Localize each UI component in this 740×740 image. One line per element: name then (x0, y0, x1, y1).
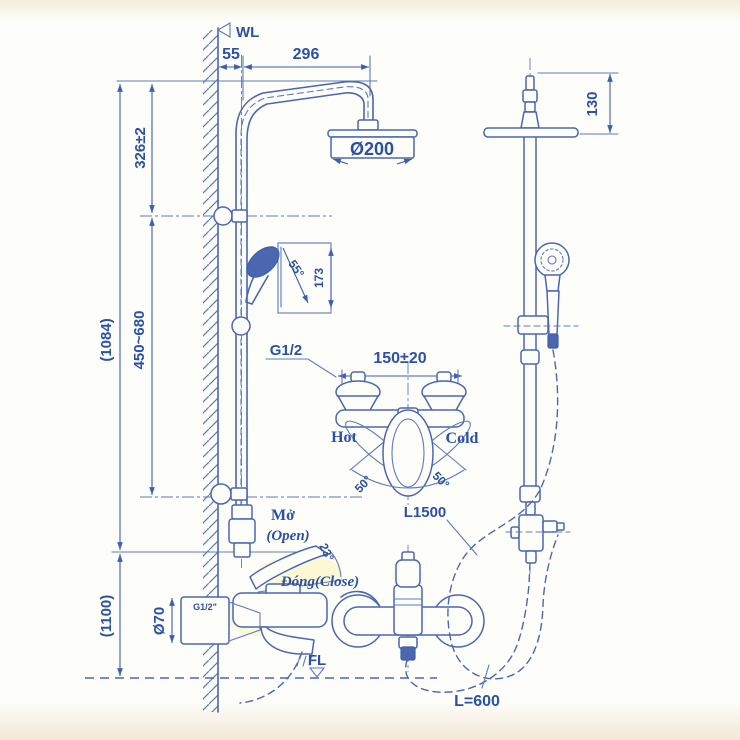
mixer-column-front (394, 585, 422, 635)
l600-leader (482, 665, 489, 688)
lower-wall-bracket (211, 484, 231, 504)
tip-nut-lower (525, 102, 535, 112)
dim-55: 55 (222, 46, 240, 63)
head-flange (358, 120, 378, 130)
wall-level-marker-icon (218, 23, 230, 37)
swing-50-left: 50° (352, 473, 375, 496)
dim-173: 173 (312, 268, 326, 288)
l1500-leader (447, 520, 477, 555)
upper-wall-bracket (214, 207, 232, 225)
dim-dia70: Ø70 (151, 607, 168, 635)
hose-l600-label: L=600 (454, 693, 500, 710)
tip-nut-upper (523, 90, 537, 102)
dim-450-680: 450~680 (131, 311, 148, 370)
check-valve-body (229, 519, 255, 543)
mixer-spout (261, 627, 314, 654)
dia200-arrow-left (333, 159, 348, 164)
head-disc-side (484, 128, 578, 137)
diverter-outlet (543, 521, 557, 532)
check-valve-top (232, 505, 252, 519)
technical-drawing-canvas: WL 55 296 326±2 (1084) 450~680 (1100) Ø2… (0, 0, 740, 740)
side-pole (524, 112, 536, 487)
dim-dia200: Ø200 (350, 139, 394, 159)
air-inlet-tip (526, 76, 534, 90)
floor-level-marker-icon (310, 668, 324, 677)
lever-knob-front (396, 560, 420, 587)
hose-connector-front (401, 647, 415, 660)
diverter-tail (526, 551, 536, 563)
handshower-head-side (535, 243, 569, 277)
check-valve-nut (234, 543, 250, 557)
lever-front (383, 410, 433, 496)
inlet-thread-label: G1/2" (193, 602, 217, 612)
holder-bracket-side (518, 316, 548, 334)
slider-holder (232, 317, 250, 335)
hot-label: Hot (331, 429, 357, 446)
diverter-body (519, 515, 543, 551)
hose-l1500-label: L1500 (404, 504, 447, 521)
dim-1100: (1100) (98, 595, 115, 638)
head-top-plate (328, 130, 417, 137)
shower-installation-diagram: WL 55 296 326±2 (1084) 450~680 (1100) Ø2… (0, 0, 740, 740)
open-vi-label: Mở (271, 507, 295, 524)
handshower-neck-side (545, 275, 560, 291)
dim-150: 150±20 (373, 350, 426, 367)
swing-50-right: 50° (430, 469, 453, 492)
pole-joint-upper (521, 350, 539, 364)
mixer-body-side (233, 593, 327, 627)
dia200-arrow-right (397, 159, 412, 164)
front-view-column (211, 55, 417, 568)
outlet-nipple (557, 523, 564, 530)
dim-296: 296 (293, 46, 320, 63)
thread-g12: G1/2 (270, 342, 303, 359)
fl-label: FL (308, 652, 326, 669)
cold-label: Cold (446, 430, 479, 447)
handle-grip-side (548, 334, 558, 348)
close-label: Đóng(Close) (280, 574, 359, 590)
dim-1084: (1084) (98, 318, 115, 361)
g12-leader-line (266, 359, 336, 377)
mixer-front-view (332, 545, 484, 672)
upper-bracket-clamp (232, 210, 247, 222)
dim-130: 130 (584, 91, 601, 116)
dim-326: 326±2 (132, 127, 149, 169)
open-en-label: (Open) (266, 528, 309, 544)
lower-bracket-clamp (231, 488, 247, 500)
wl-label: WL (236, 24, 259, 41)
head-hub-side (521, 112, 539, 128)
spout-front (399, 637, 417, 648)
side-view-column (484, 58, 618, 575)
handshower-handle-side (547, 291, 559, 335)
